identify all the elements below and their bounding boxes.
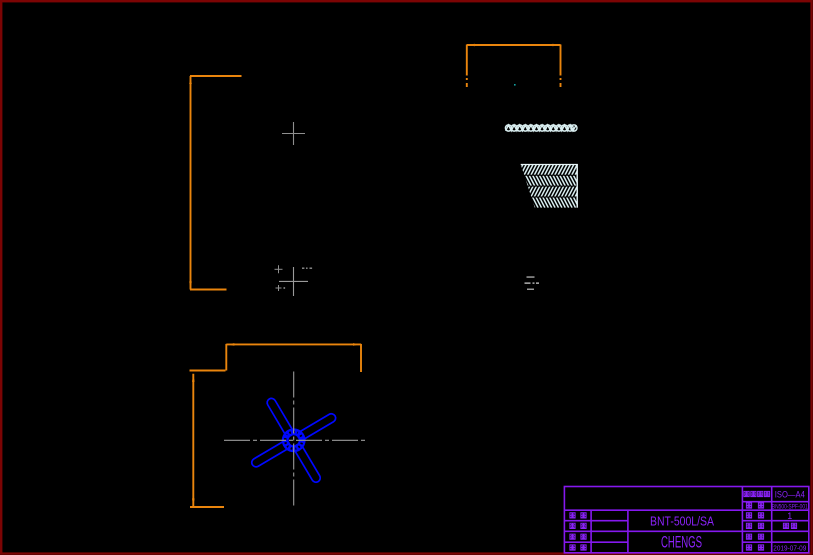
svg-text:BN500-SPF-001: BN500-SPF-001: [772, 504, 808, 511]
svg-text:1: 1: [787, 511, 792, 521]
svg-text:ISO—A4: ISO—A4: [775, 489, 805, 499]
svg-text:CHENGS: CHENGS: [661, 534, 702, 552]
svg-text:2019-07-09: 2019-07-09: [773, 544, 806, 553]
svg-text:BNT-500L/SA: BNT-500L/SA: [650, 514, 714, 529]
